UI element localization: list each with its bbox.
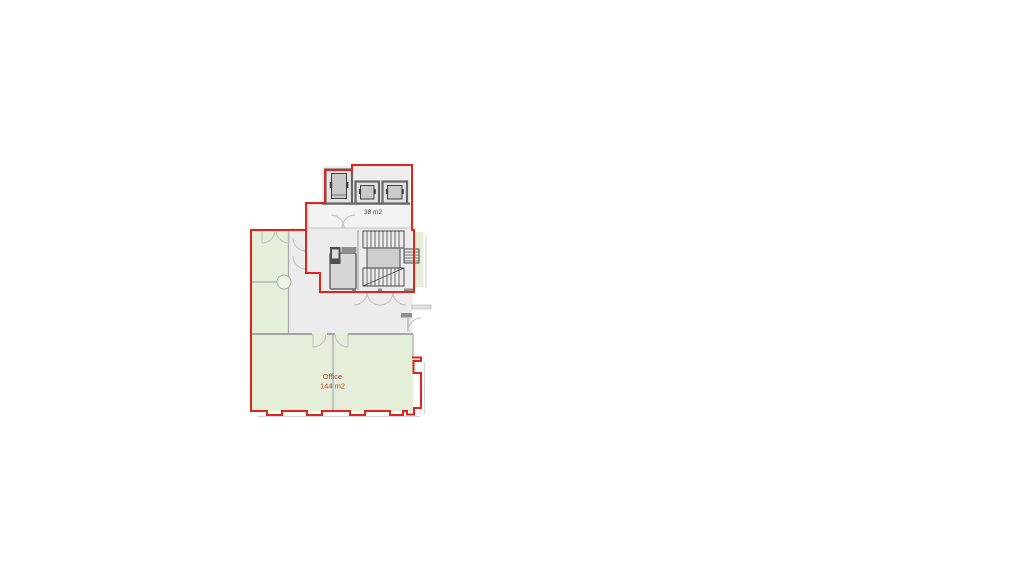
lobby-room-38m2 [308,204,412,228]
round-table-icon [277,275,291,289]
lobby-area-label: 38 m2 [364,209,382,216]
floor-plan: 38 m2 Office 144 m2 [0,0,1024,576]
wall-segment-right [401,313,412,318]
elevator-shaft-3 [383,182,408,204]
elevator-shaft-2 [356,182,380,204]
wc-block [330,247,357,289]
document-canvas: 38 m2 Office 144 m2 [0,0,1024,576]
elevator-shaft-1 [326,170,353,204]
wc-counter [342,247,357,252]
wall-step-right [412,305,431,309]
elevator-car-icon [361,186,375,200]
office-area-label[interactable]: 144 m2 [320,382,345,391]
wc-sink-basin [332,250,339,259]
stair-upper-flight [363,231,404,248]
stair-landing [367,248,400,268]
office-name-label[interactable]: Office [323,372,342,381]
elevator-car-icon [388,186,403,200]
